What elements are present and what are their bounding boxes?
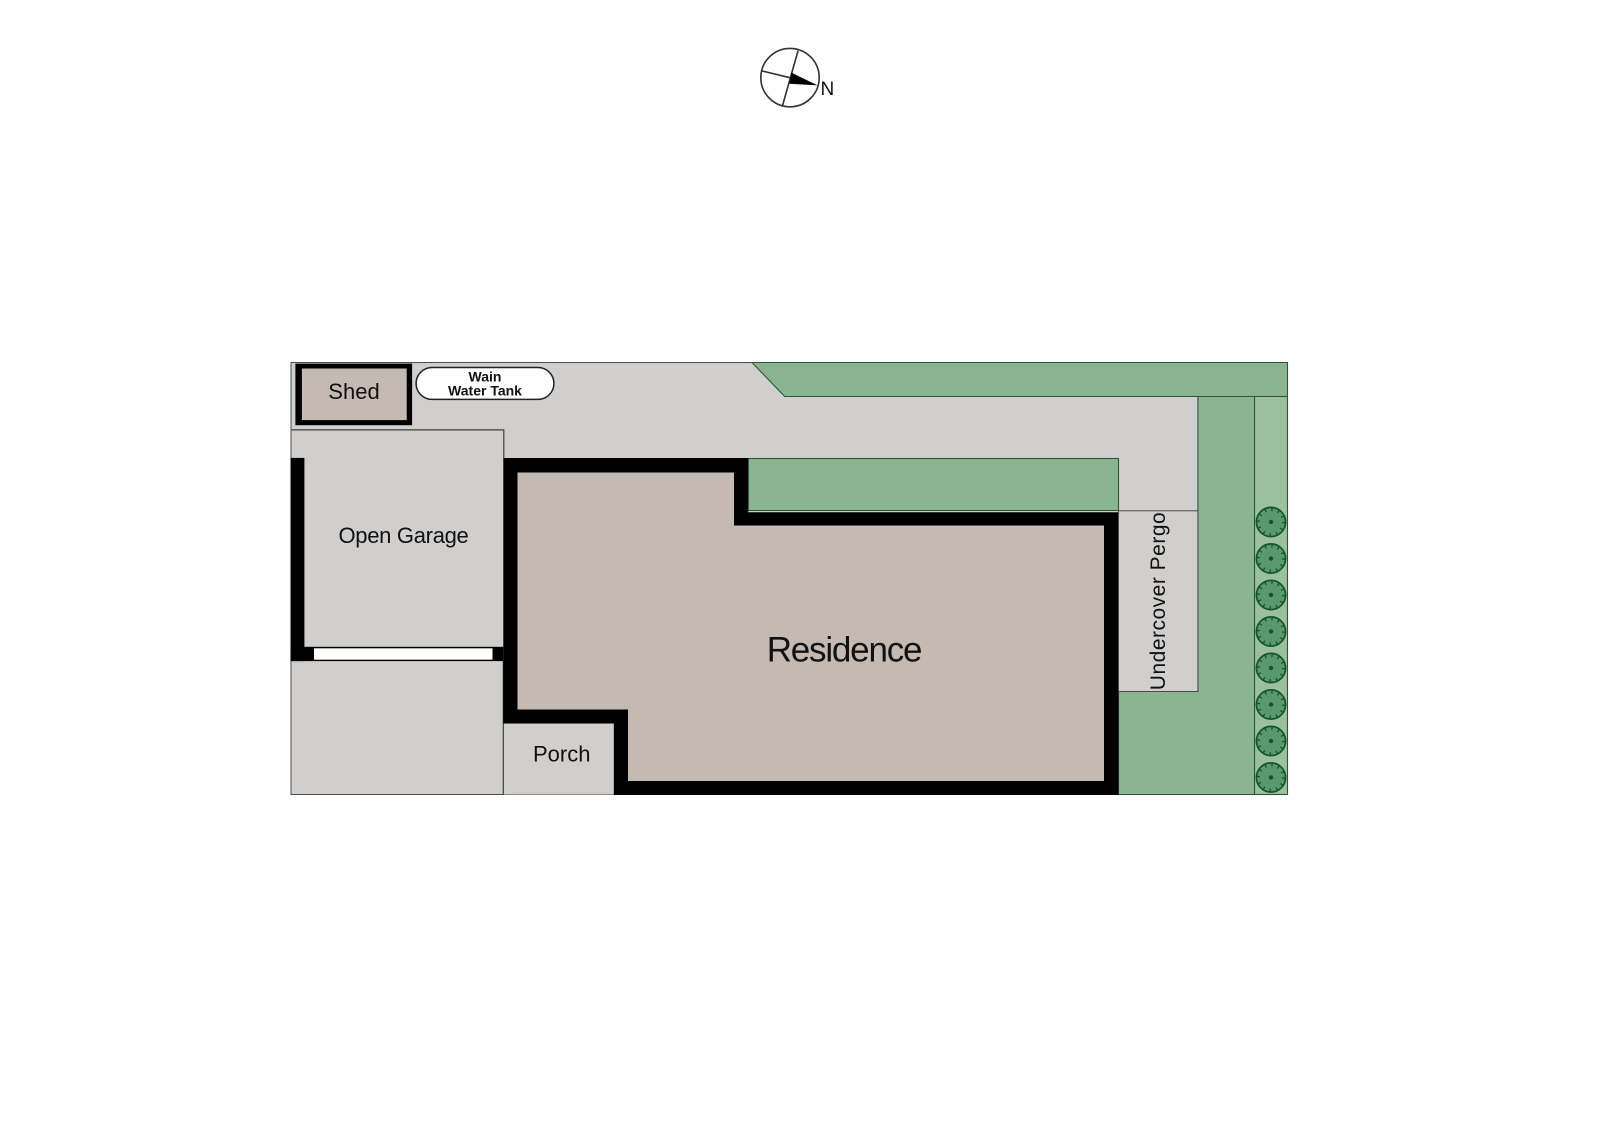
svg-text:Open Garage: Open Garage [338, 523, 468, 548]
svg-text:Porch: Porch [533, 742, 590, 767]
svg-text:Water Tank: Water Tank [448, 383, 522, 399]
svg-text:Residence: Residence [767, 631, 922, 670]
svg-text:Undercover Pergo: Undercover Pergo [1147, 512, 1170, 690]
svg-text:Shed: Shed [328, 379, 379, 404]
svg-text:N: N [821, 79, 835, 100]
